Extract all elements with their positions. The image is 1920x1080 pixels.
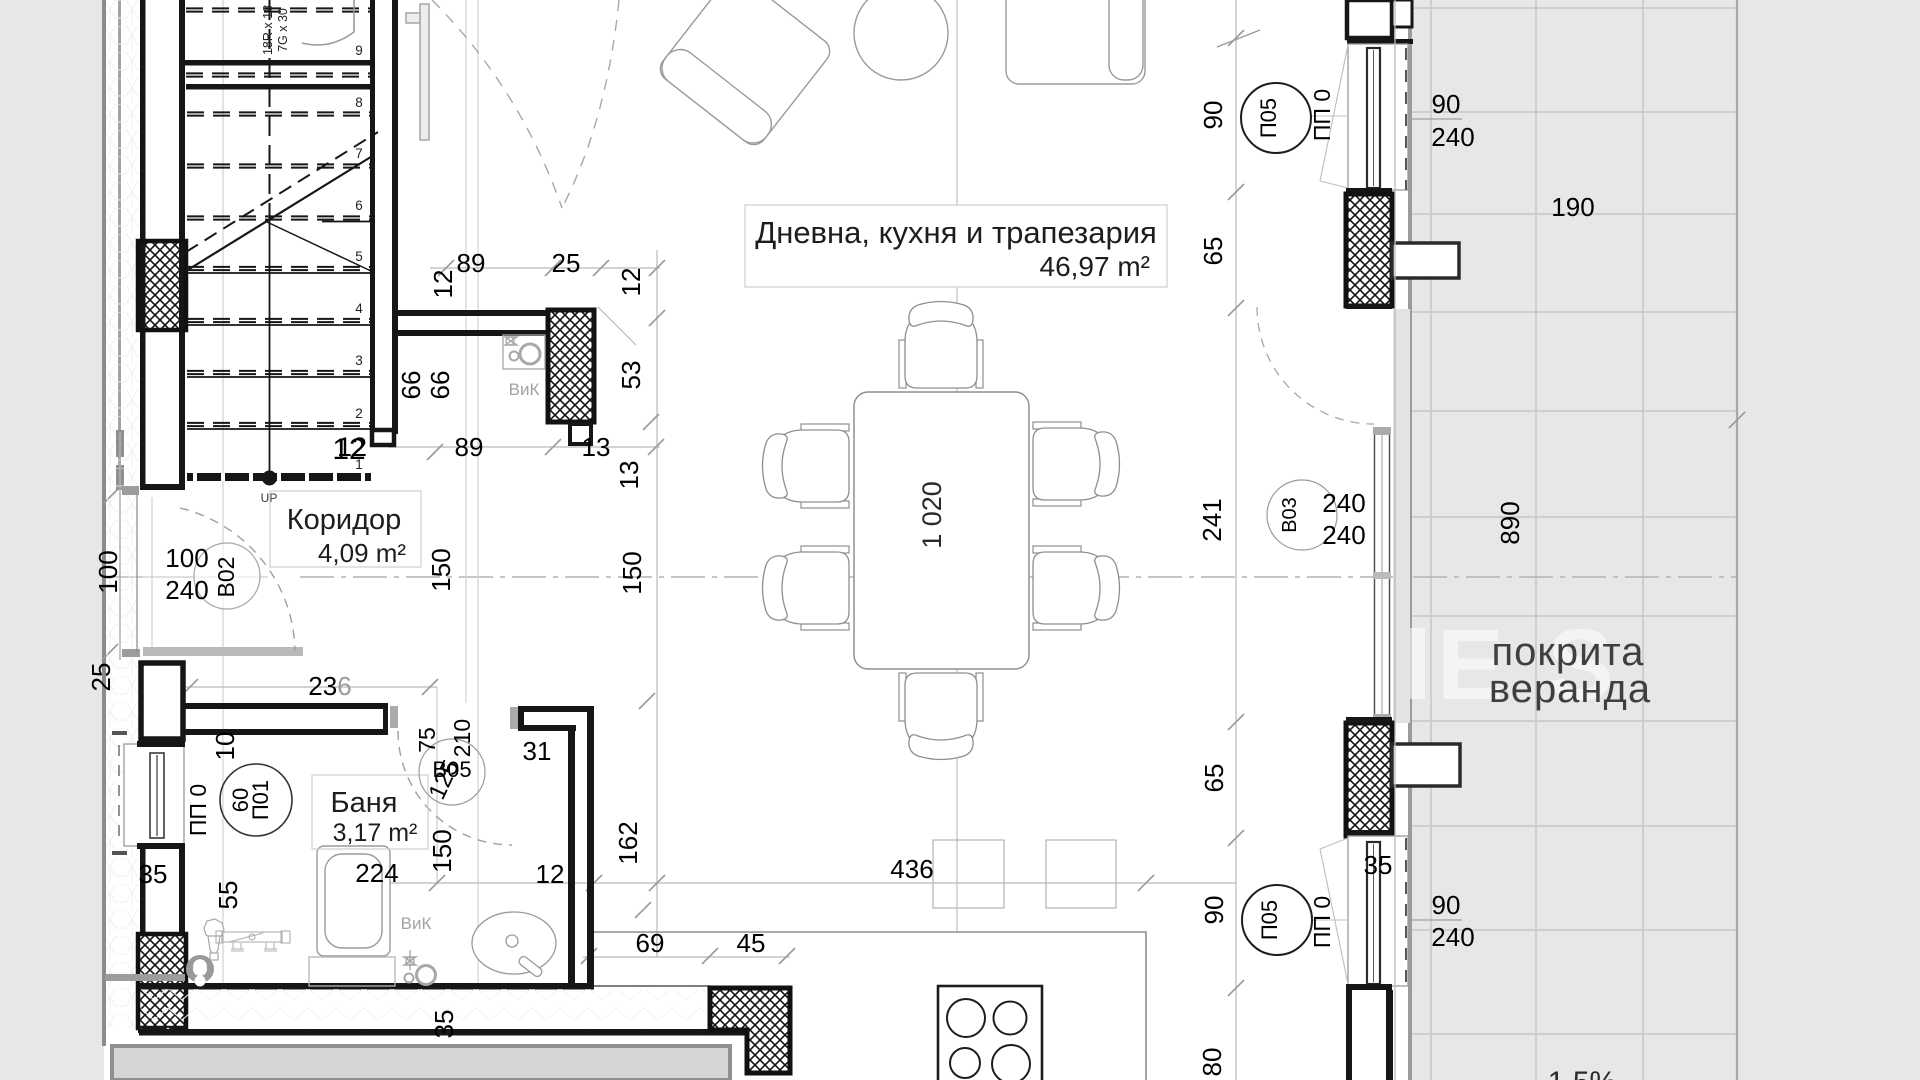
svg-text:89: 89 bbox=[455, 432, 484, 462]
svg-text:65: 65 bbox=[1198, 237, 1228, 266]
svg-text:12: 12 bbox=[616, 268, 646, 297]
svg-text:100: 100 bbox=[93, 550, 123, 593]
svg-text:25: 25 bbox=[86, 663, 116, 692]
svg-text:90: 90 bbox=[1432, 89, 1461, 119]
svg-text:65: 65 bbox=[1199, 764, 1229, 793]
svg-text:90: 90 bbox=[1199, 896, 1229, 925]
svg-text:35: 35 bbox=[139, 859, 168, 889]
svg-text:Коридор: Коридор bbox=[287, 504, 402, 536]
svg-text:35: 35 bbox=[429, 1010, 459, 1039]
svg-text:69: 69 bbox=[636, 928, 665, 958]
svg-text:13: 13 bbox=[614, 461, 644, 490]
svg-text:ПП 0: ПП 0 bbox=[1309, 89, 1335, 141]
svg-text:П01: П01 bbox=[248, 780, 273, 820]
svg-text:66: 66 bbox=[425, 371, 455, 400]
svg-text:35: 35 bbox=[1364, 850, 1393, 880]
svg-text:П05: П05 bbox=[1257, 900, 1282, 940]
svg-text:9: 9 bbox=[355, 43, 363, 58]
svg-text:25: 25 bbox=[552, 248, 581, 278]
svg-text:240: 240 bbox=[1431, 922, 1474, 952]
svg-text:150: 150 bbox=[427, 829, 457, 872]
svg-text:236: 236 bbox=[308, 671, 351, 701]
svg-text:6: 6 bbox=[355, 198, 363, 213]
svg-text:ПП 0: ПП 0 bbox=[185, 784, 211, 836]
svg-text:150: 150 bbox=[426, 548, 456, 591]
svg-text:4,09 m²: 4,09 m² bbox=[318, 538, 406, 568]
svg-text:240: 240 bbox=[165, 575, 208, 605]
svg-text:12: 12 bbox=[337, 432, 367, 462]
svg-text:10: 10 bbox=[210, 732, 240, 761]
svg-text:80: 80 bbox=[1197, 1048, 1227, 1077]
svg-text:46,97 m²: 46,97 m² bbox=[1040, 251, 1151, 282]
svg-text:240: 240 bbox=[1431, 122, 1474, 152]
svg-text:8: 8 bbox=[355, 95, 363, 110]
svg-text:В02: В02 bbox=[213, 557, 239, 598]
svg-text:100: 100 bbox=[165, 543, 208, 573]
svg-text:224: 224 bbox=[355, 858, 398, 888]
svg-text:66: 66 bbox=[396, 371, 426, 400]
svg-text:Дневна, кухня и трапезария: Дневна, кухня и трапезария bbox=[755, 215, 1157, 250]
svg-text:240: 240 bbox=[1322, 520, 1365, 550]
svg-text:89: 89 bbox=[457, 248, 486, 278]
svg-text:90: 90 bbox=[1198, 101, 1228, 130]
svg-text:190: 190 bbox=[1551, 192, 1594, 222]
svg-text:ПП 0: ПП 0 bbox=[1309, 896, 1335, 948]
svg-text:П05: П05 bbox=[1256, 98, 1281, 138]
svg-text:53: 53 bbox=[616, 361, 646, 390]
svg-text:75: 75 bbox=[414, 727, 440, 753]
svg-text:UP: UP bbox=[261, 491, 278, 505]
svg-text:ВиК: ВиК bbox=[401, 914, 432, 933]
svg-text:3,17 m²: 3,17 m² bbox=[333, 819, 418, 847]
svg-text:4: 4 bbox=[355, 301, 363, 316]
svg-text:890: 890 bbox=[1495, 501, 1525, 544]
svg-text:2: 2 bbox=[355, 406, 363, 421]
svg-text:241: 241 bbox=[1197, 498, 1227, 541]
svg-text:3: 3 bbox=[355, 353, 363, 368]
svg-text:7G x 30: 7G x 30 bbox=[276, 8, 290, 52]
svg-text:162: 162 bbox=[613, 821, 643, 864]
svg-text:В03: В03 bbox=[1279, 497, 1301, 533]
svg-text:31: 31 bbox=[523, 736, 552, 766]
svg-text:210: 210 bbox=[449, 719, 475, 757]
svg-text:5: 5 bbox=[355, 249, 363, 264]
svg-text:1 020: 1 020 bbox=[917, 481, 947, 549]
svg-text:18R x 18: 18R x 18 bbox=[261, 5, 275, 55]
svg-text:240: 240 bbox=[1322, 488, 1365, 518]
svg-text:ВиК: ВиК bbox=[509, 380, 540, 399]
svg-text:436: 436 bbox=[890, 854, 933, 884]
svg-text:55: 55 bbox=[213, 881, 243, 910]
svg-text:Баня: Баня bbox=[331, 787, 398, 819]
svg-text:150: 150 bbox=[617, 551, 647, 594]
svg-text:90: 90 bbox=[1432, 890, 1461, 920]
svg-text:веранда: веранда bbox=[1489, 667, 1651, 711]
svg-text:45: 45 bbox=[737, 928, 766, 958]
svg-text:13: 13 bbox=[582, 432, 611, 462]
svg-text:12: 12 bbox=[428, 270, 458, 299]
svg-text:1,5%: 1,5% bbox=[1548, 1066, 1616, 1080]
svg-text:12: 12 bbox=[536, 859, 565, 889]
svg-text:7: 7 bbox=[355, 146, 363, 161]
